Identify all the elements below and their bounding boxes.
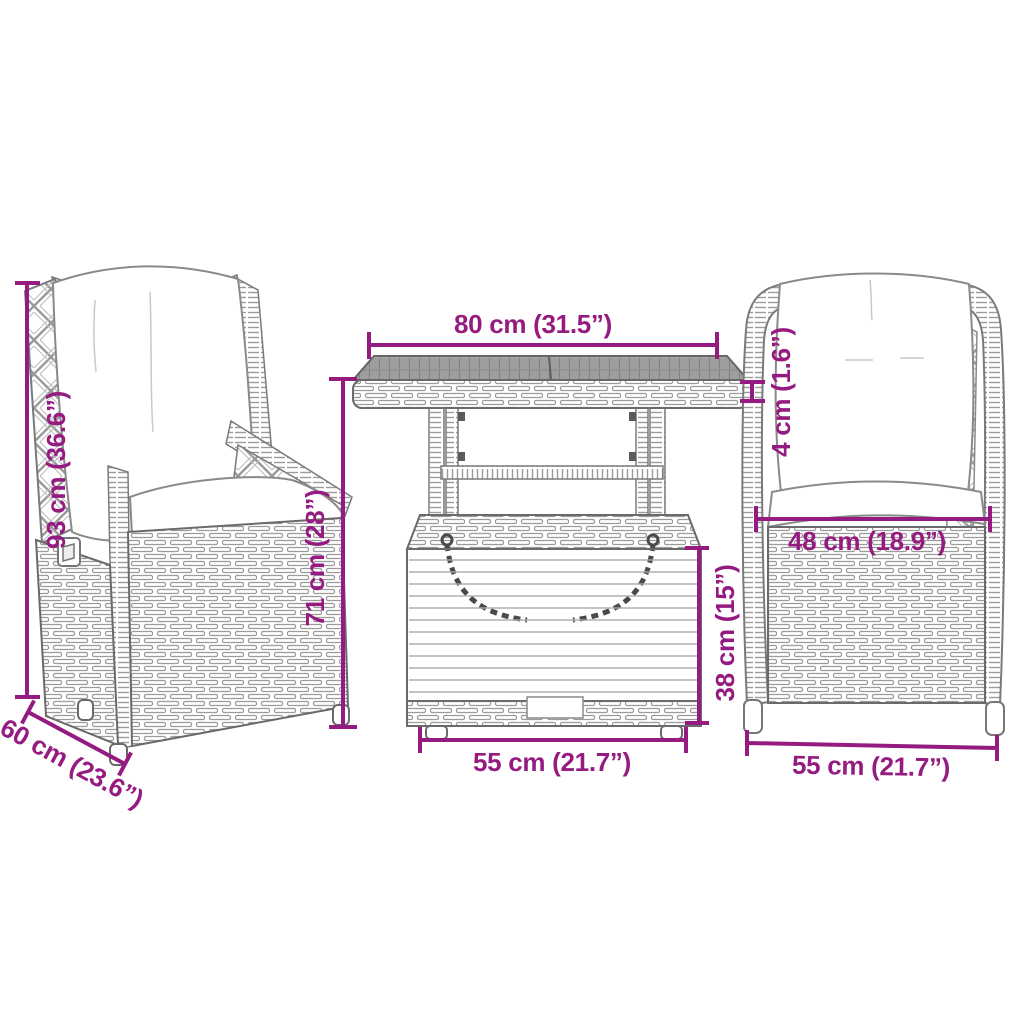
table-top-apron <box>353 380 748 408</box>
table-leg-clip <box>458 452 465 461</box>
left-chair-foot-back <box>78 700 93 720</box>
dim-label-chair-height: 93 cm (36.6”) <box>43 391 69 549</box>
table-leg-clip <box>629 452 636 461</box>
dim-label-chair-width: 55 cm (21.7”) <box>792 752 950 781</box>
right-chair-foot-right <box>986 702 1004 735</box>
product-illustration <box>0 0 1024 1024</box>
right-chair-back-cushion <box>776 274 974 493</box>
table-foot-right <box>661 726 682 739</box>
dim-line-table-base-height <box>685 548 709 723</box>
table-base-handle <box>527 697 583 718</box>
product-dimension-diagram: 80 cm (31.5”) 93 cm (36.6”) 71 cm (28”) … <box>0 0 1024 1024</box>
dim-label-chair-seat-width: 48 cm (18.9”) <box>788 528 946 554</box>
dim-label-table-base-width: 55 cm (21.7”) <box>473 749 631 775</box>
dim-label-table-top-thickness: 4 cm (1.6”) <box>768 327 794 457</box>
table-foot-left <box>426 726 447 739</box>
table-leg-clip <box>458 412 465 421</box>
dim-label-chair-back-height: 71 cm (28”) <box>302 490 328 627</box>
dim-label-table-base-height: 38 cm (15”) <box>712 565 738 702</box>
dim-label-table-top-width: 80 cm (31.5”) <box>454 311 612 337</box>
table-base-body-weave <box>409 560 699 692</box>
table-leg-clip <box>629 412 636 421</box>
table-crossbar <box>441 466 663 479</box>
table-leg-right-outer <box>650 406 665 524</box>
table-leg-left-inner <box>446 406 458 524</box>
table-leg-right-inner <box>636 406 648 524</box>
table-leg-left-outer <box>429 406 444 524</box>
right-chair-foot-left <box>744 700 762 733</box>
